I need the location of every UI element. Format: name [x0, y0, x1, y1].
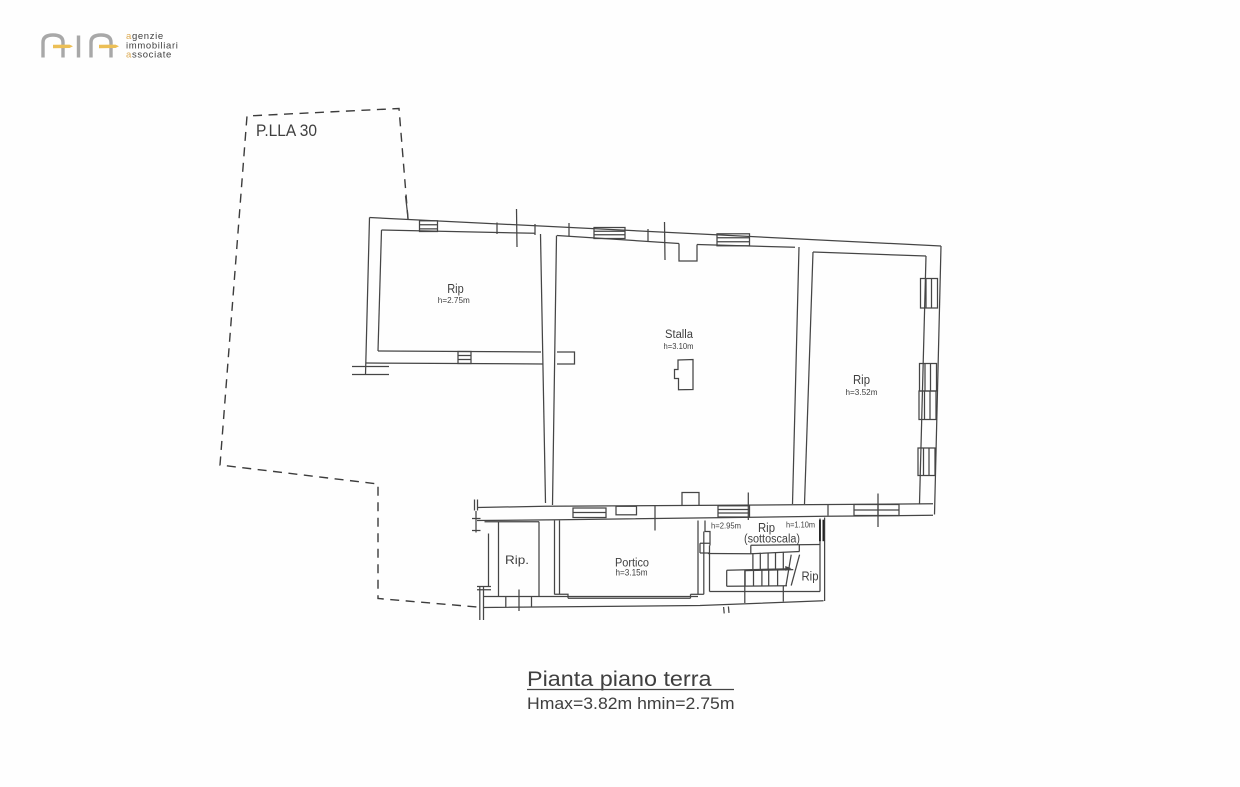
svg-text:Hmax=3.82m hmin=2.75m: Hmax=3.82m hmin=2.75m: [527, 695, 735, 713]
svg-text:Rip: Rip: [853, 373, 870, 387]
svg-text:h=2.95m: h=2.95m: [711, 522, 741, 531]
svg-text:associate: associate: [126, 50, 172, 61]
svg-text:Pianta piano terra: Pianta piano terra: [527, 668, 712, 691]
svg-text:Rip.: Rip.: [505, 553, 529, 567]
svg-text:h=3.15m: h=3.15m: [616, 568, 648, 578]
svg-text:Rip: Rip: [802, 570, 819, 584]
svg-text:h=3.10m: h=3.10m: [664, 341, 694, 351]
svg-text:h=1.10m: h=1.10m: [786, 521, 815, 530]
svg-text:Rip: Rip: [447, 282, 464, 296]
svg-text:h=3.52m: h=3.52m: [846, 387, 878, 397]
svg-text:Stalla: Stalla: [665, 329, 694, 341]
svg-text:P.LLA 30: P.LLA 30: [256, 122, 317, 140]
svg-text:h=2.75m: h=2.75m: [438, 295, 470, 305]
svg-text:(sottoscala): (sottoscala): [744, 534, 800, 546]
